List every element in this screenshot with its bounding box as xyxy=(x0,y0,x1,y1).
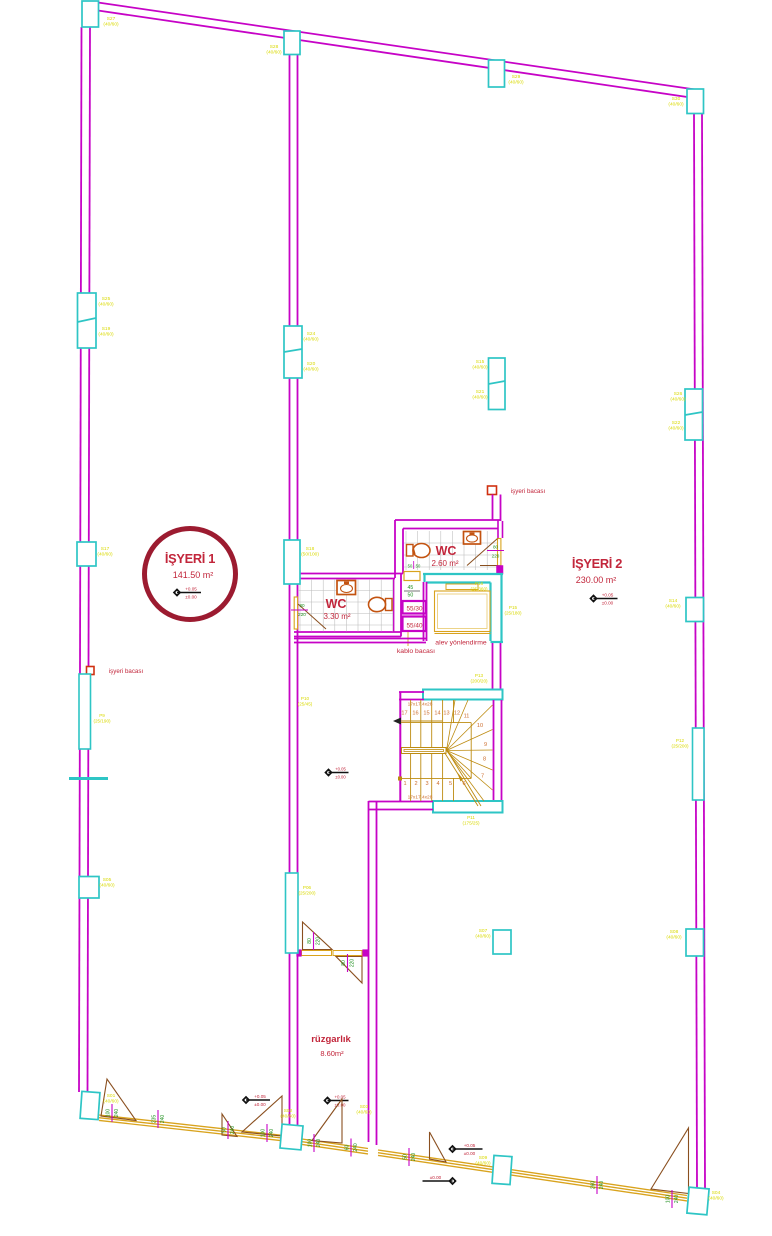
svg-text:240: 240 xyxy=(160,1115,166,1124)
svg-text:50: 50 xyxy=(408,564,413,569)
svg-text:(25/180): (25/180) xyxy=(504,611,522,616)
svg-text:(50/100): (50/100) xyxy=(301,552,319,558)
svg-text:S27: S27 xyxy=(107,16,116,22)
svg-text:17x17.4x28: 17x17.4x28 xyxy=(408,702,433,708)
svg-text:+0.05: +0.05 xyxy=(335,766,346,771)
svg-text:240: 240 xyxy=(316,1139,322,1148)
svg-text:50: 50 xyxy=(416,564,421,569)
svg-text:S07: S07 xyxy=(479,928,488,934)
svg-text:240: 240 xyxy=(674,1195,680,1204)
svg-text:+0.05: +0.05 xyxy=(254,1094,266,1099)
svg-text:S18: S18 xyxy=(306,546,315,552)
svg-text:S17: S17 xyxy=(101,546,110,552)
svg-text:10: 10 xyxy=(477,723,483,729)
svg-text:(40/60): (40/60) xyxy=(266,50,282,56)
svg-text:+0.05: +0.05 xyxy=(185,586,197,591)
svg-text:(25/200): (25/200) xyxy=(298,891,316,896)
svg-text:±0.00: ±0.00 xyxy=(602,601,614,606)
svg-text:WC: WC xyxy=(436,544,457,558)
svg-text:S02: S02 xyxy=(284,1108,293,1114)
svg-text:(40/60): (40/60) xyxy=(280,1114,296,1120)
svg-text:(40/60): (40/60) xyxy=(103,1099,119,1105)
svg-text:İŞYERİ 1: İŞYERİ 1 xyxy=(165,551,215,566)
svg-text:4: 4 xyxy=(436,781,439,787)
svg-text:1: 1 xyxy=(403,781,406,787)
svg-text:(40/60): (40/60) xyxy=(356,1110,372,1116)
svg-text:2.60 m²: 2.60 m² xyxy=(431,559,458,568)
svg-text:±0.00: ±0.00 xyxy=(464,1151,476,1156)
svg-text:260: 260 xyxy=(590,1181,596,1190)
svg-text:(40/60): (40/60) xyxy=(668,426,684,432)
svg-text:±0.00: ±0.00 xyxy=(335,775,346,780)
svg-text:P15: P15 xyxy=(509,605,518,610)
svg-text:80: 80 xyxy=(299,603,305,608)
svg-text:+0.05: +0.05 xyxy=(602,592,614,597)
svg-text:9: 9 xyxy=(484,742,487,748)
svg-text:P10: P10 xyxy=(301,696,310,701)
svg-text:45: 45 xyxy=(408,585,414,591)
svg-text:(200/20): (200/20) xyxy=(470,679,488,684)
svg-text:8.60m²: 8.60m² xyxy=(320,1049,344,1058)
svg-text:S05: S05 xyxy=(103,877,112,883)
svg-text:17x17.4x28: 17x17.4x28 xyxy=(408,795,433,801)
svg-text:(40/60): (40/60) xyxy=(472,365,488,371)
svg-text:(40/60): (40/60) xyxy=(472,395,488,401)
svg-text:S09: S09 xyxy=(479,1155,488,1161)
svg-text:işyeri bacası: işyeri bacası xyxy=(511,488,546,495)
svg-text:55/30: 55/30 xyxy=(407,606,423,613)
svg-text:12: 12 xyxy=(454,711,460,717)
svg-text:(40/60): (40/60) xyxy=(508,80,524,86)
svg-text:S29: S29 xyxy=(512,74,521,80)
svg-text:S03: S03 xyxy=(360,1104,369,1110)
svg-text:S14: S14 xyxy=(669,598,678,604)
svg-text:220: 220 xyxy=(298,612,306,617)
svg-text:220: 220 xyxy=(492,554,500,559)
svg-text:(40/60): (40/60) xyxy=(670,397,686,403)
svg-text:240: 240 xyxy=(599,1181,605,1190)
svg-text:S24: S24 xyxy=(307,331,316,337)
svg-text:S15: S15 xyxy=(476,359,485,365)
svg-text:100: 100 xyxy=(105,1109,111,1118)
svg-text:S21: S21 xyxy=(476,389,485,395)
svg-text:+0.05: +0.05 xyxy=(334,1094,346,1099)
svg-text:işyeri bacası: işyeri bacası xyxy=(109,668,144,675)
svg-text:(25/190): (25/190) xyxy=(93,719,111,724)
svg-text:P12: P12 xyxy=(676,738,685,743)
svg-text:(25/200): (25/200) xyxy=(671,744,689,749)
svg-text:50: 50 xyxy=(221,1127,227,1133)
svg-text:13: 13 xyxy=(443,711,449,717)
svg-text:(40/60): (40/60) xyxy=(99,883,115,889)
svg-text:60: 60 xyxy=(344,1145,350,1151)
svg-text:7: 7 xyxy=(481,774,484,780)
svg-text:S04: S04 xyxy=(712,1190,721,1196)
svg-text:240: 240 xyxy=(114,1109,120,1118)
svg-text:80: 80 xyxy=(341,960,347,966)
svg-text:(40/60): (40/60) xyxy=(98,332,114,338)
svg-text:(40/60): (40/60) xyxy=(668,102,684,108)
svg-text:P13: P13 xyxy=(475,673,484,678)
svg-text:14: 14 xyxy=(434,711,440,717)
svg-text:(40/60): (40/60) xyxy=(666,935,682,941)
svg-text:230.00 m²: 230.00 m² xyxy=(576,575,617,585)
svg-text:(40/60): (40/60) xyxy=(475,934,491,940)
svg-text:(40/60): (40/60) xyxy=(475,1161,491,1167)
svg-text:80: 80 xyxy=(493,545,499,550)
svg-text:rüzgarlık: rüzgarlık xyxy=(311,1034,351,1045)
svg-text:S28: S28 xyxy=(270,44,279,50)
svg-text:S19: S19 xyxy=(102,326,111,332)
svg-text:S20: S20 xyxy=(307,361,316,367)
svg-text:(25/45): (25/45) xyxy=(298,702,313,707)
svg-text:S26: S26 xyxy=(674,391,683,397)
svg-text:55/40: 55/40 xyxy=(407,623,423,630)
svg-text:6: 6 xyxy=(462,781,465,787)
svg-text:50: 50 xyxy=(402,1154,408,1160)
svg-text:kablo bacası: kablo bacası xyxy=(397,648,435,655)
svg-text:İŞYERİ 2: İŞYERİ 2 xyxy=(572,556,622,571)
svg-text:alev yönlendirme: alev yönlendirme xyxy=(435,640,487,647)
svg-text:(40/60): (40/60) xyxy=(303,367,319,373)
svg-text:P16: P16 xyxy=(475,581,484,586)
svg-text:S25: S25 xyxy=(102,296,111,302)
svg-text:11: 11 xyxy=(464,714,470,720)
svg-text:5: 5 xyxy=(449,781,452,787)
svg-text:WC: WC xyxy=(326,597,347,611)
svg-text:±0.00: ±0.00 xyxy=(185,595,197,600)
svg-text:240: 240 xyxy=(269,1129,275,1138)
svg-text:S08: S08 xyxy=(670,929,679,935)
svg-text:17: 17 xyxy=(401,711,407,717)
svg-text:(40/60): (40/60) xyxy=(708,1196,724,1202)
svg-text:8: 8 xyxy=(483,757,486,763)
svg-text:S22: S22 xyxy=(672,420,681,426)
svg-text:±0.00: ±0.00 xyxy=(430,1175,442,1180)
svg-text:80: 80 xyxy=(307,938,313,944)
svg-text:3: 3 xyxy=(425,781,428,787)
svg-text:(175/25): (175/25) xyxy=(462,821,480,826)
svg-text:141.50 m²: 141.50 m² xyxy=(173,570,214,580)
svg-text:3.30 m²: 3.30 m² xyxy=(323,612,350,621)
svg-text:(40/60): (40/60) xyxy=(103,22,119,28)
svg-text:240: 240 xyxy=(230,1126,236,1135)
svg-text:±0.00: ±0.00 xyxy=(254,1102,266,1107)
svg-text:P11: P11 xyxy=(467,815,475,820)
svg-text:(40/60): (40/60) xyxy=(98,302,114,308)
svg-text:(40/60): (40/60) xyxy=(303,337,319,343)
svg-text:(40/60): (40/60) xyxy=(97,552,113,558)
svg-text:50: 50 xyxy=(408,593,414,599)
svg-text:16: 16 xyxy=(412,711,418,717)
svg-text:P06: P06 xyxy=(303,885,312,890)
svg-text:220: 220 xyxy=(315,937,321,946)
svg-text:(40/60): (40/60) xyxy=(665,604,681,610)
svg-text:240: 240 xyxy=(411,1153,417,1162)
svg-text:100: 100 xyxy=(665,1195,671,1204)
svg-text:S01: S01 xyxy=(107,1093,116,1099)
svg-text:100: 100 xyxy=(307,1139,313,1148)
svg-text:P9: P9 xyxy=(99,713,105,718)
svg-text:+0.05: +0.05 xyxy=(464,1143,476,1148)
svg-text:(25/360): (25/360) xyxy=(470,587,488,592)
svg-text:240: 240 xyxy=(353,1143,359,1152)
svg-text:S30: S30 xyxy=(672,96,681,102)
svg-text:220: 220 xyxy=(349,959,355,968)
svg-text:2: 2 xyxy=(414,781,417,787)
svg-text:235: 235 xyxy=(151,1115,157,1124)
svg-text:15: 15 xyxy=(423,711,429,717)
svg-text:100: 100 xyxy=(260,1129,266,1138)
